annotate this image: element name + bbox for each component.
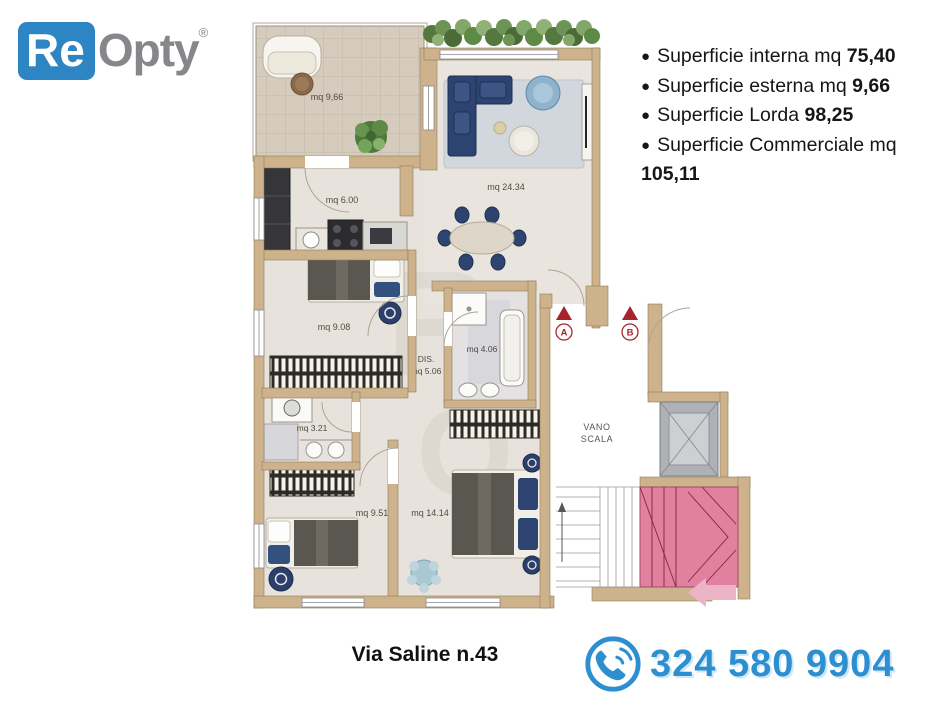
bed-2-pillow-blue	[268, 545, 290, 564]
surface-value: 9,66	[852, 75, 890, 97]
logo-opty-text: Opty	[98, 22, 199, 78]
bullet-icon: ●	[641, 78, 650, 95]
surface-value: 105,11	[641, 163, 700, 185]
bathroom-2-area-label: mq 3.21	[297, 423, 328, 433]
terrace-area-label: mq 9,66	[311, 92, 344, 102]
entrance-b-label: B	[627, 328, 634, 339]
hallway-title: DIS.	[418, 354, 435, 364]
shower-2	[264, 424, 298, 460]
phone-icon	[582, 633, 644, 695]
surface-summary-list: ●Superficie interna mq 75,40 ●Superficie…	[641, 42, 943, 190]
terrace: mq 9,66	[253, 23, 427, 161]
stove	[328, 220, 363, 252]
terrace-lounge-sofa	[263, 36, 321, 78]
wardrobe-3	[450, 410, 540, 438]
bed-1-pillow-blue	[374, 282, 400, 297]
bedroom-2-area-label: mq 9.51	[356, 508, 389, 518]
toilet-2	[306, 442, 322, 458]
wardrobe-1	[270, 356, 402, 390]
bidet-2	[328, 442, 344, 458]
stairwell-label-1: VANO	[583, 422, 610, 432]
surface-value: 75,40	[847, 45, 896, 67]
dining-table	[450, 222, 514, 254]
surface-label: Superficie Commerciale mq	[657, 134, 897, 156]
surface-label: Superficie esterna mq	[657, 75, 847, 97]
bedroom-3-area-label: mq 14.14	[411, 508, 449, 518]
surface-item-interna: ●Superficie interna mq 75,40	[641, 42, 943, 72]
registered-mark: ®	[199, 26, 209, 39]
wardrobe-2	[270, 466, 354, 496]
pouf-3b	[523, 556, 541, 574]
elevator	[660, 402, 718, 476]
surface-item-esterna: ●Superficie esterna mq 9,66	[641, 72, 943, 102]
kitchen-tall-cabinet	[264, 168, 290, 252]
coffee-table-top	[514, 131, 534, 151]
phone-contact: 324 580 9904	[582, 633, 894, 695]
bullet-icon: ●	[641, 48, 650, 65]
living-area-label: mq 24.34	[487, 182, 525, 192]
stair-direction-arrow-icon	[558, 502, 566, 512]
bullet-icon: ●	[641, 137, 650, 154]
side-table	[494, 122, 506, 134]
bed-3-pillow-b	[518, 518, 538, 550]
bathroom-1-area-label: mq 4.06	[467, 344, 498, 354]
street-address: Via Saline n.43	[300, 643, 550, 667]
bullet-icon: ●	[641, 107, 650, 124]
kitchen-sink-2	[370, 228, 392, 244]
surface-value: 98,25	[805, 104, 854, 126]
kitchen-sink	[303, 232, 319, 248]
pouf-3a	[523, 454, 541, 472]
bed-3-pillow-a	[518, 478, 538, 510]
surface-label: Superficie interna mq	[657, 45, 841, 67]
bed-1-pillow	[374, 260, 400, 277]
toilet	[459, 383, 477, 397]
logo-re-badge: Re	[18, 22, 95, 80]
terrace-plant	[355, 120, 388, 153]
bathroom-1: mq 4.06	[452, 291, 528, 400]
stairwell-label-2: SCALA	[581, 434, 614, 444]
surface-item-commerciale: ●Superficie Commerciale mq	[641, 131, 943, 161]
stairs-pink-flight	[640, 487, 738, 587]
entrance-a-arrow-icon	[556, 306, 572, 320]
surface-item-lorda: ●Superficie Lorda 98,25	[641, 101, 943, 131]
balcony-hedge	[423, 19, 600, 47]
surface-label: Superficie Lorda	[657, 104, 799, 126]
surface-item-commerciale-value: 105,11	[641, 160, 943, 190]
pouf-2	[269, 567, 293, 591]
reopty-logo: Re Opty ®	[18, 22, 208, 80]
armchair-cushion	[533, 83, 553, 103]
kitchen-area-label: mq 6.00	[326, 195, 359, 205]
entrance-b-arrow-icon	[622, 306, 638, 320]
phone-number: 324 580 9904	[650, 643, 894, 686]
bidet	[481, 383, 499, 397]
real-estate-floorplan-page: Re Opty ® R O	[0, 0, 950, 712]
terrace-table-top	[295, 77, 309, 91]
bed-2-pillow	[268, 521, 290, 542]
bedroom-1-area-label: mq 9.08	[318, 322, 351, 332]
entrance-a-label: A	[561, 328, 568, 339]
